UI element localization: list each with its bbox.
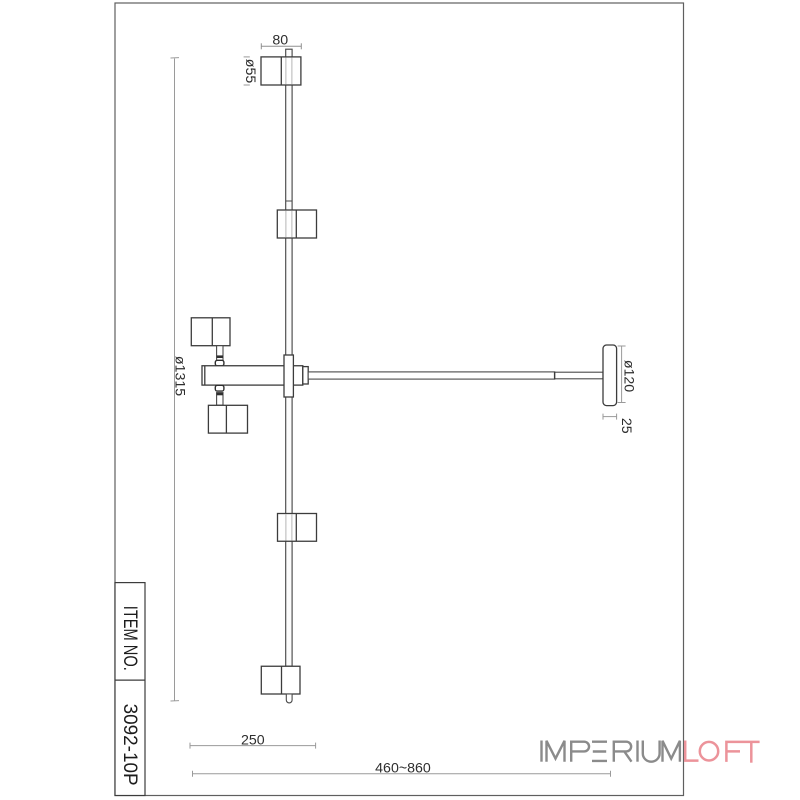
svg-text:ø120: ø120 bbox=[621, 360, 637, 392]
svg-text:3092-10P: 3092-10P bbox=[119, 704, 141, 786]
svg-text:460~860: 460~860 bbox=[375, 761, 431, 777]
svg-text:ITEM NO.: ITEM NO. bbox=[119, 606, 141, 671]
svg-text:ø55: ø55 bbox=[242, 59, 258, 84]
svg-text:80: 80 bbox=[272, 33, 288, 49]
svg-text:25: 25 bbox=[618, 418, 634, 434]
svg-text:250: 250 bbox=[241, 732, 265, 748]
svg-text:ø1315: ø1315 bbox=[171, 356, 187, 396]
